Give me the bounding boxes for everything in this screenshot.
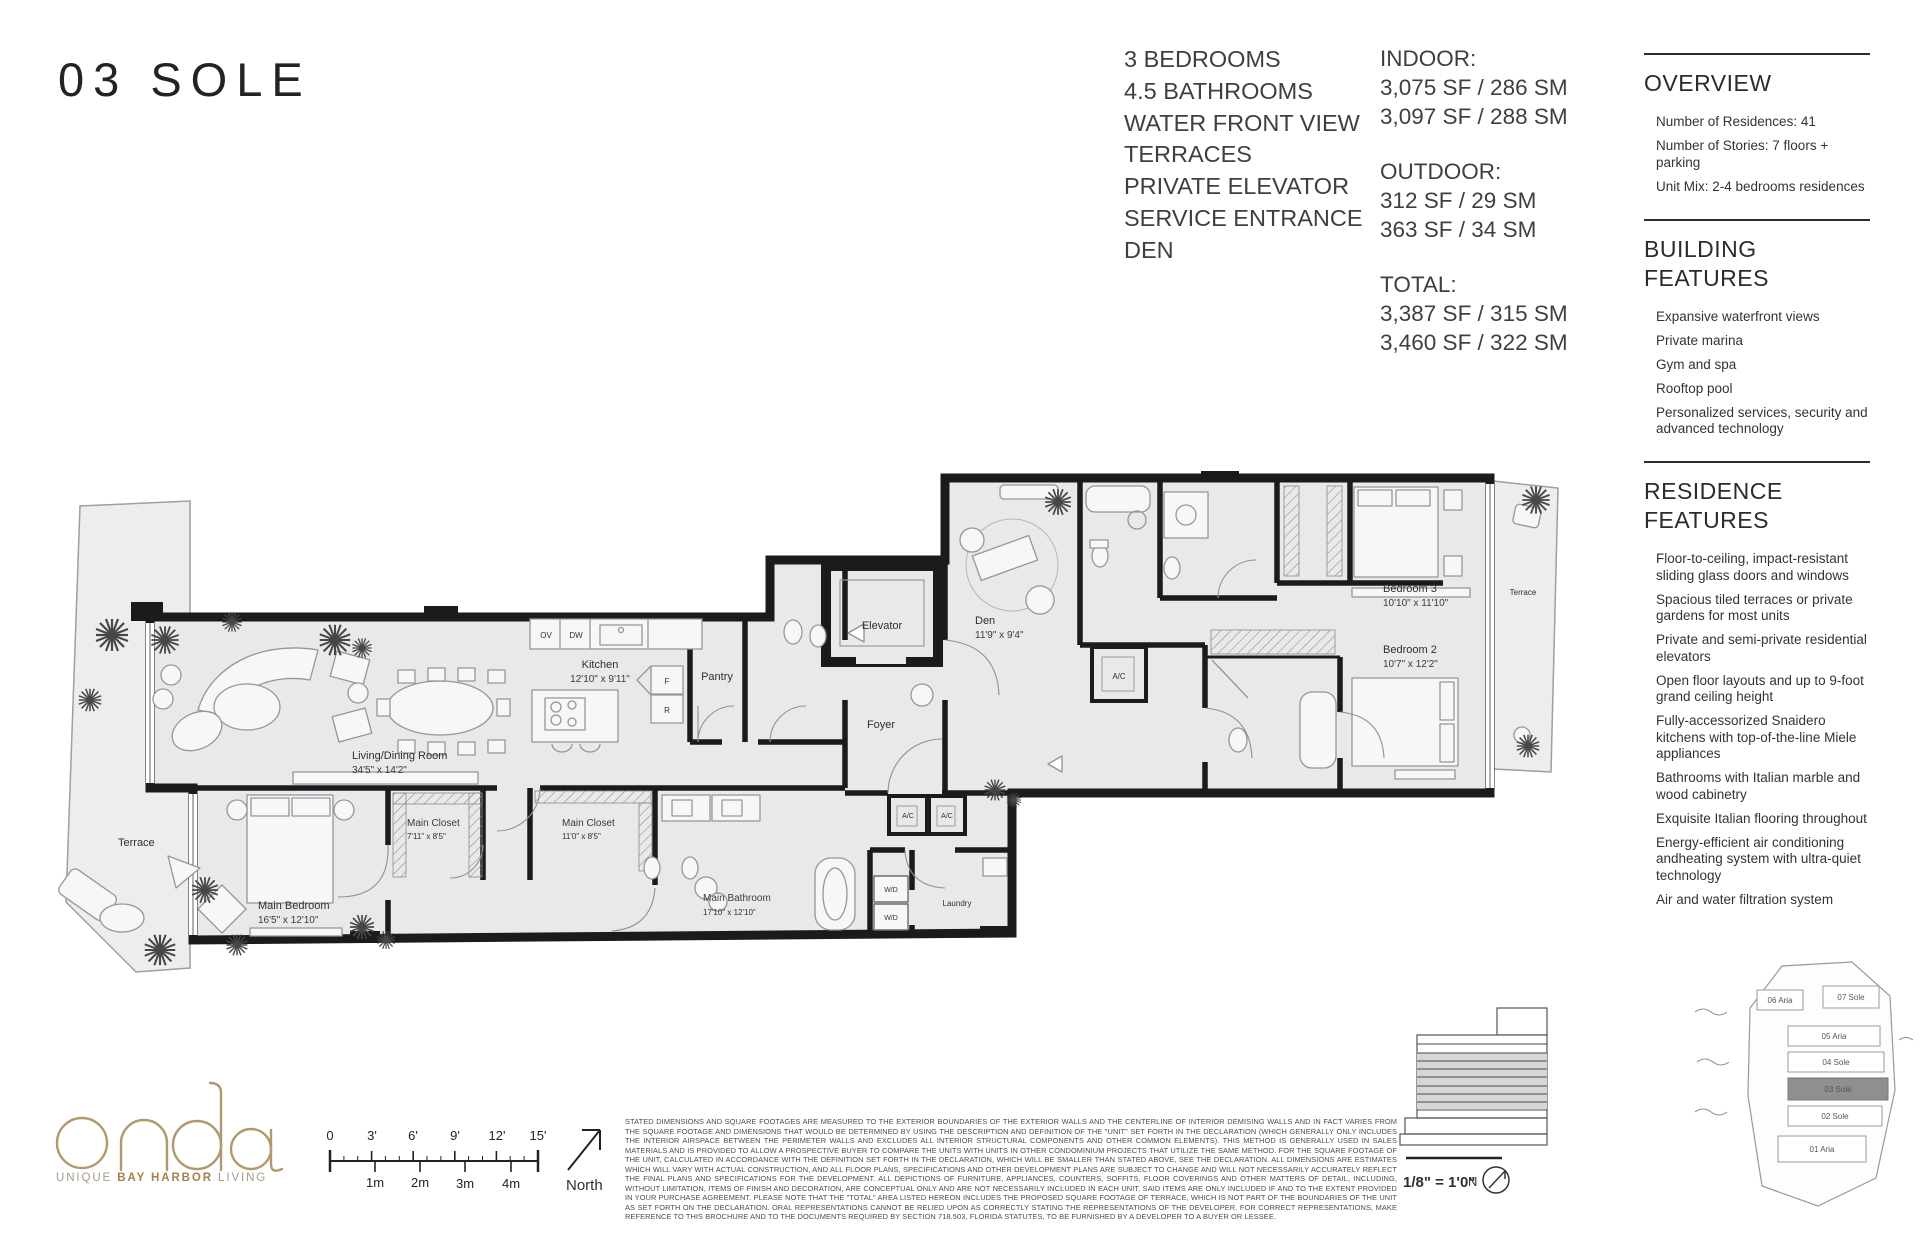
scale-3m: 3m	[456, 1176, 474, 1191]
kitchen-dims: 12'10" x 9'11"	[570, 674, 630, 685]
scale-bar: 0 3' 6' 9' 12' 15' 1m 2m 3m 4m	[326, 1128, 546, 1191]
terrace-left-label: Terrace	[118, 837, 155, 849]
ac-label-1: A/C	[902, 813, 914, 820]
scale-2m: 2m	[411, 1175, 429, 1190]
foyer-label: Foyer	[867, 719, 895, 731]
main-bathroom-dims: 17'10" x 12'10"	[703, 908, 756, 917]
site-key-plan: 06 Aria 07 Sole 05 Aria 04 Sole 03 Sole …	[1695, 962, 1913, 1206]
keyplan-unit-05: 05 Aria	[1822, 1032, 1847, 1041]
building-elevation	[1400, 1008, 1547, 1158]
keyplan-unit-06: 06 Aria	[1768, 996, 1793, 1005]
keyplan-unit-07: 07 Sole	[1837, 993, 1865, 1002]
bedroom2-dims: 10'7" x 12'2"	[1383, 659, 1438, 670]
main-bathroom-label: Main Bathroom	[703, 893, 771, 904]
washer-dryer-label-1: W/D	[884, 887, 898, 894]
logo-tagline: onda UNIQUE BAY HARBOR LIVING	[56, 1172, 271, 1184]
terrace-right-label: Terrace	[1510, 588, 1537, 597]
north-label: North	[566, 1177, 603, 1194]
north-arrow-icon	[568, 1130, 600, 1170]
refrigerator-label: R	[664, 706, 670, 715]
main-closet2-label: Main Closet	[562, 818, 615, 829]
scale-6ft: 6'	[408, 1128, 418, 1143]
scale-9ft: 9'	[450, 1128, 460, 1143]
main-closet2-dims: 11'0" x 8'5"	[562, 832, 601, 841]
den-label: Den	[975, 615, 995, 627]
ac-label-2: A/C	[941, 813, 953, 820]
bedroom3-dims: 10'10" x 11'10"	[1383, 598, 1449, 609]
scale-15ft: 15'	[530, 1128, 547, 1143]
main-closet1-dims: 7'11" x 8'5"	[407, 832, 446, 841]
onda-logo	[57, 1083, 282, 1171]
main-closet1-label: Main Closet	[407, 818, 460, 829]
scale-0: 0	[326, 1128, 333, 1143]
washer-dryer-label-2: W/D	[884, 915, 898, 922]
keyplan-unit-03-highlighted: 03 Sole	[1824, 1085, 1852, 1094]
keyplan-north-letter: N	[1468, 1174, 1477, 1189]
dishwasher-label: DW	[569, 631, 583, 640]
scale-4m: 4m	[502, 1176, 520, 1191]
keyplan-unit-02: 02 Sole	[1821, 1112, 1849, 1121]
tagline-living: LIVING	[218, 1172, 267, 1184]
living-room-dims: 34'5" x 14'2"	[352, 765, 407, 776]
keyplan-unit-04: 04 Sole	[1822, 1058, 1850, 1067]
floorplan-brochure-page: { "page": { "title": "03 SOLE" }, "featu…	[0, 0, 1920, 1242]
bedroom2-label: Bedroom 2	[1383, 644, 1437, 656]
ac-label-3: A/C	[1112, 672, 1126, 681]
keyplan-scale-note: 1/8" = 1'0"	[1403, 1174, 1475, 1191]
laundry-label: Laundry	[943, 899, 972, 908]
compass-icon	[1483, 1167, 1509, 1193]
scale-1m: 1m	[366, 1175, 384, 1190]
pantry-label: Pantry	[701, 671, 733, 683]
floorplan-drawing: Living/Dining Room 34'5" x 14'2" Kitchen…	[0, 0, 1920, 1242]
elevator-label: Elevator	[862, 620, 903, 632]
oven-label: OV	[540, 631, 552, 640]
living-room-label: Living/Dining Room	[352, 750, 447, 762]
scale-3ft: 3'	[367, 1128, 377, 1143]
keyplan-unit-01: 01 Aria	[1810, 1145, 1835, 1154]
main-bedroom-label: Main Bedroom	[258, 900, 330, 912]
freezer-label: F	[665, 677, 670, 686]
kitchen-label: Kitchen	[582, 659, 619, 671]
bedroom3-label: Bedroom 3	[1383, 583, 1437, 595]
legal-disclaimer: STATED DIMENSIONS AND SQUARE FOOTAGES AR…	[625, 1117, 1397, 1222]
den-dims: 11'9" x 9'4"	[975, 630, 1024, 641]
scale-12ft: 12'	[489, 1128, 506, 1143]
tagline-bay-harbor: BAY HARBOR	[117, 1172, 213, 1184]
main-bedroom-dims: 16'5" x 12'10"	[258, 915, 319, 926]
tagline-unique: UNIQUE	[56, 1172, 112, 1184]
